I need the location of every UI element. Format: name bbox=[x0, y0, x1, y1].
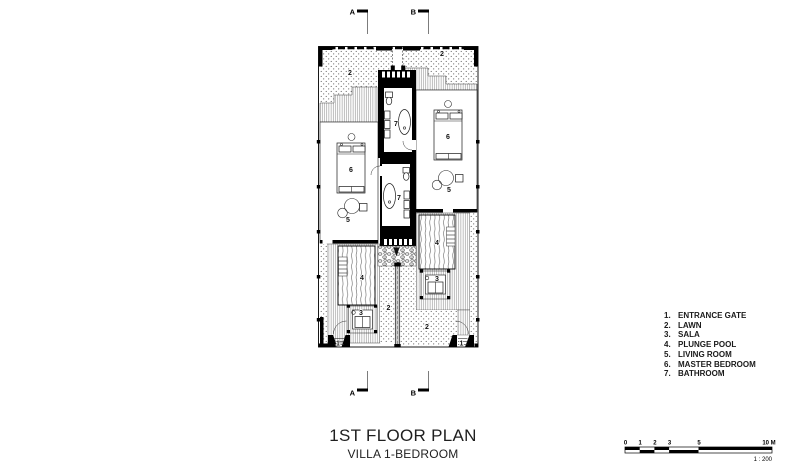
legend-item-label: ENTRANCE GATE bbox=[678, 311, 746, 321]
room-label-lawn-bottom-right: 2 bbox=[425, 324, 429, 331]
legend-item-label: BATHROOM bbox=[678, 369, 725, 379]
section-flag bbox=[357, 389, 368, 392]
vanity bbox=[404, 191, 410, 199]
vanity bbox=[385, 121, 391, 129]
boundary-post bbox=[317, 140, 321, 144]
room-label-bathroom-upper: 7 bbox=[394, 121, 398, 128]
side-table bbox=[456, 175, 464, 183]
room-label-sala-right: 3 bbox=[435, 276, 439, 283]
floor-plan-drawing: 6 5 4 bbox=[0, 0, 800, 466]
boundary-post bbox=[476, 318, 480, 322]
room-label-lawn-top-left: 2 bbox=[348, 70, 352, 77]
lawn-strip-right-west bbox=[400, 266, 416, 346]
pillow bbox=[450, 113, 462, 119]
scale-tick: 5 bbox=[697, 441, 701, 447]
scale-tick: 3 bbox=[668, 441, 672, 447]
room-label-living-left: 5 bbox=[346, 217, 350, 224]
room-label-bedroom-right: 6 bbox=[446, 134, 450, 141]
legend-item-number: 5. bbox=[664, 350, 678, 360]
post bbox=[420, 296, 423, 299]
section-flag bbox=[418, 10, 429, 13]
legend: 1. ENTRANCE GATE 2. LAWN 3. SALA 4. PLUN… bbox=[664, 311, 756, 379]
post bbox=[347, 330, 350, 333]
boundary-post bbox=[476, 230, 480, 234]
post bbox=[347, 305, 350, 308]
sala-left bbox=[347, 305, 377, 334]
legend-item-label: LAWN bbox=[678, 321, 702, 331]
post bbox=[447, 270, 450, 273]
room-label-lawn-top-right: 2 bbox=[440, 51, 444, 58]
pillow bbox=[353, 146, 365, 152]
scale-tick: 1 bbox=[639, 441, 643, 447]
drawing-sheet: 6 5 4 bbox=[0, 0, 800, 466]
boundary-post bbox=[476, 185, 480, 189]
boundary-post bbox=[476, 275, 480, 279]
section-marker-a-top: A bbox=[350, 8, 368, 35]
section-label-b: B bbox=[411, 389, 417, 398]
boundary-post bbox=[476, 140, 480, 144]
room-label-bedroom-left: 6 bbox=[349, 167, 353, 174]
scale-ratio: 1 : 200 bbox=[754, 457, 773, 463]
legend-item: 1. ENTRANCE GATE bbox=[664, 311, 756, 321]
legend-item-number: 2. bbox=[664, 321, 678, 331]
fence-post bbox=[394, 263, 400, 267]
toilet bbox=[403, 168, 410, 174]
room-label-living-right: 5 bbox=[447, 187, 451, 194]
legend-item: 4. PLUNGE POOL bbox=[664, 340, 756, 350]
pillow bbox=[339, 146, 351, 152]
boundary-post bbox=[317, 230, 321, 234]
sala-right bbox=[420, 270, 450, 300]
scale-bar: 0 1 2 3 5 10 M 1 : 200 bbox=[624, 441, 776, 464]
post bbox=[420, 270, 423, 273]
room-label-gate-left: 1 bbox=[336, 341, 340, 348]
title-block: 1ST FLOOR PLAN VILLA 1-BEDROOM bbox=[283, 426, 523, 461]
plunge-pool-left bbox=[338, 246, 375, 305]
room-label-sala-left: 3 bbox=[359, 310, 363, 317]
side-table bbox=[360, 204, 368, 212]
vanity bbox=[404, 201, 410, 209]
boundary-post bbox=[317, 318, 321, 322]
room-label-lawn-bottom-left: 2 bbox=[387, 305, 391, 312]
legend-item: 6. MASTER BEDROOM bbox=[664, 360, 756, 370]
vanity bbox=[404, 210, 410, 218]
legend-item: 7. BATHROOM bbox=[664, 369, 756, 379]
legend-item-label: PLUNGE POOL bbox=[678, 340, 736, 350]
scale-tick: 2 bbox=[653, 441, 657, 447]
room-label-bathroom-lower: 7 bbox=[397, 195, 401, 202]
legend-item-label: MASTER BEDROOM bbox=[678, 360, 756, 370]
boundary-post bbox=[317, 185, 321, 189]
legend-item-number: 4. bbox=[664, 340, 678, 350]
bathtub-upper bbox=[399, 110, 411, 135]
section-label-a: A bbox=[350, 8, 356, 17]
scale-tick: 10 M bbox=[762, 441, 775, 447]
room-label-pool-right: 4 bbox=[435, 240, 439, 247]
legend-item: 2. LAWN bbox=[664, 321, 756, 331]
gate-jamb bbox=[465, 335, 474, 347]
legend-item-number: 1. bbox=[664, 311, 678, 321]
boundary-post bbox=[475, 344, 479, 348]
boundary-post bbox=[319, 344, 323, 348]
post bbox=[374, 305, 377, 308]
section-flag bbox=[357, 10, 368, 13]
pillow bbox=[436, 113, 448, 119]
section-marker-b-top: B bbox=[411, 8, 429, 35]
toilet bbox=[386, 92, 393, 98]
legend-item-number: 6. bbox=[664, 360, 678, 370]
room-label-gate-right: 1 bbox=[460, 341, 464, 348]
scale-tick: 0 bbox=[624, 441, 628, 447]
section-label-b: B bbox=[411, 8, 417, 17]
section-flag bbox=[418, 389, 429, 392]
boundary-post bbox=[317, 275, 321, 279]
vanity bbox=[385, 111, 391, 119]
room-label-pool-left: 4 bbox=[360, 275, 364, 282]
legend-item-label: SALA bbox=[678, 330, 700, 340]
drawing-title: 1ST FLOOR PLAN bbox=[283, 426, 523, 446]
section-label-a: A bbox=[350, 389, 356, 398]
bathtub-lower bbox=[384, 184, 396, 209]
legend-item-number: 7. bbox=[664, 369, 678, 379]
section-marker-a-bottom: A bbox=[350, 371, 368, 398]
drawing-subtitle: VILLA 1-BEDROOM bbox=[283, 447, 523, 461]
post bbox=[374, 330, 377, 333]
post bbox=[447, 296, 450, 299]
legend-item-number: 3. bbox=[664, 330, 678, 340]
legend-item: 5. LIVING ROOM bbox=[664, 350, 756, 360]
vanity bbox=[385, 130, 391, 138]
legend-item: 3. SALA bbox=[664, 330, 756, 340]
section-marker-b-bottom: B bbox=[411, 371, 429, 398]
legend-item-label: LIVING ROOM bbox=[678, 350, 732, 360]
